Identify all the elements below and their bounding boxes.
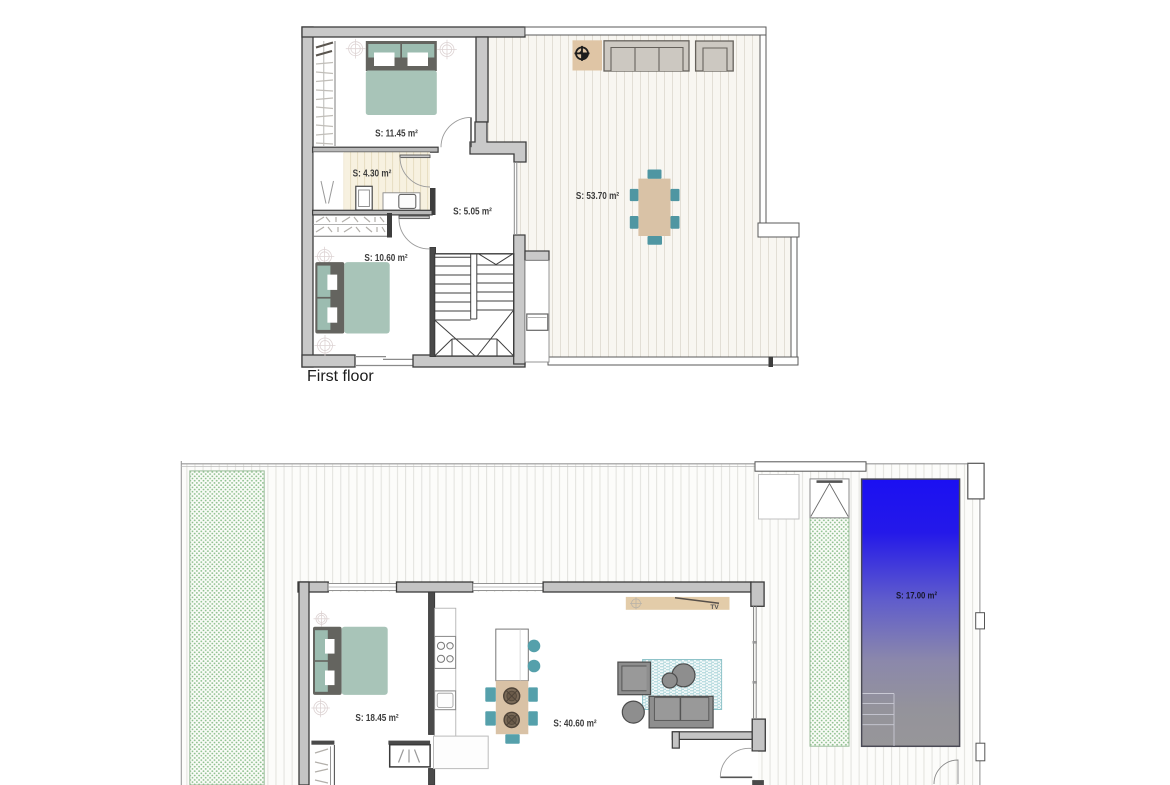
svg-text:TV: TV — [710, 604, 719, 611]
svg-text:S: 53.70 m²: S: 53.70 m² — [576, 190, 619, 201]
svg-text:S: 11.45 m²: S: 11.45 m² — [375, 128, 418, 139]
svg-text:S: 4.30 m²: S: 4.30 m² — [353, 168, 392, 179]
svg-text:S: 40.60 m²: S: 40.60 m² — [553, 718, 596, 729]
svg-text:S: 17.00 m²: S: 17.00 m² — [896, 590, 937, 601]
svg-text:S: 10.60 m²: S: 10.60 m² — [364, 252, 407, 263]
svg-text:First floor: First floor — [307, 368, 374, 385]
svg-text:S: 18.45 m²: S: 18.45 m² — [355, 712, 398, 723]
svg-text:S: 5.05 m²: S: 5.05 m² — [453, 206, 492, 217]
